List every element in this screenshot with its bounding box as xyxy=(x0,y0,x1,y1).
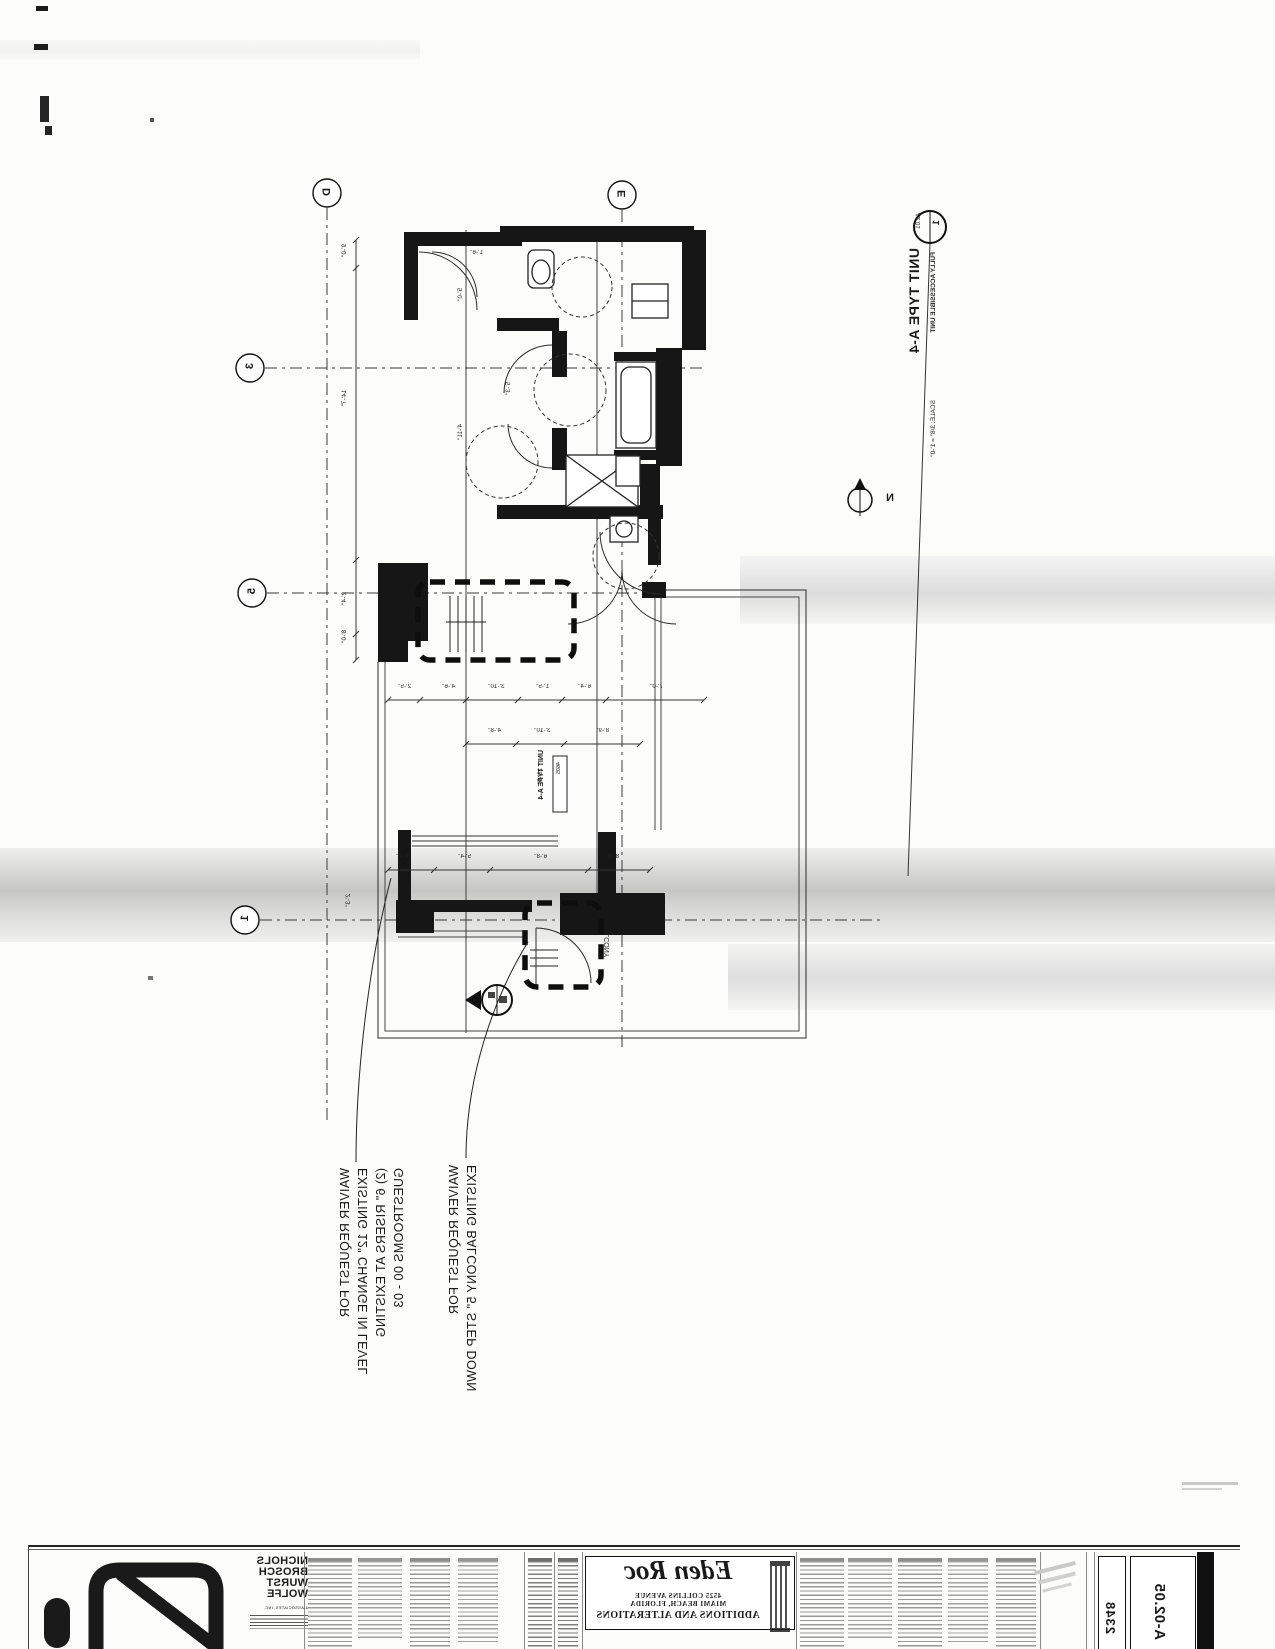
grid-bubble-5: 5 xyxy=(246,588,258,594)
balcony-outline xyxy=(378,590,806,1038)
title-block-text-column xyxy=(996,1558,1036,1647)
dimension-label: 5'-3" xyxy=(506,382,512,395)
title-block-divider xyxy=(1086,1552,1087,1649)
floor-plan-drawing xyxy=(0,0,1275,1649)
north-label: N xyxy=(886,492,894,504)
detail-sheet-ref: A2.01 xyxy=(916,213,922,229)
dimension-label: 18'-5" xyxy=(538,768,544,784)
dimension-label: 14'-7" xyxy=(342,390,348,406)
printed-note xyxy=(1182,1488,1222,1490)
scanned-drawing-sheet: D E 3 5 1 1 A2.01 UNIT TYPE A-4 FULLY AC… xyxy=(0,0,1275,1649)
drawing-subtitle: FULLY ACCESSIBLE UNIT xyxy=(930,252,937,333)
dimension-label: 4'-8" xyxy=(488,728,501,734)
grid-bubble-D: D xyxy=(321,188,333,196)
annotation-line: GUESTROOMS 00 - 03 xyxy=(392,1168,406,1308)
dimension-label: 3'-10" xyxy=(534,728,550,734)
grid-bubble-1: 1 xyxy=(239,915,251,921)
dimension-label: 6'-4" xyxy=(578,684,591,690)
project-address1: 4525 COLLINS AVENUE xyxy=(598,1592,758,1600)
title-block-text-column xyxy=(458,1558,498,1643)
project-address2: MIAMI BEACH, FLORIDA xyxy=(598,1600,758,1608)
title-block-text-column xyxy=(410,1558,450,1649)
title-block-divider xyxy=(554,1552,555,1649)
title-block-divider xyxy=(796,1552,797,1649)
sheet-number: A-02.05 xyxy=(1151,1583,1168,1640)
dimension-label: 2'-5" xyxy=(398,684,411,690)
grid-bubble-3: 3 xyxy=(244,363,256,369)
title-block-text-column xyxy=(800,1558,844,1649)
dimension-label: 8'-9" xyxy=(606,854,619,860)
project-title-box: Eden Roc 4525 COLLINS AVENUE MIAMI BEACH… xyxy=(585,1556,795,1630)
title-block-text-column xyxy=(948,1558,988,1643)
project-type: ADDITIONS AND ALTERATIONS xyxy=(590,1610,766,1621)
title-block-divider xyxy=(304,1552,305,1649)
title-block-text-column xyxy=(898,1558,942,1649)
annotation-line: (2) 6" RISERS AT EXISTING xyxy=(374,1168,388,1338)
title-block-text-column xyxy=(848,1558,892,1641)
room-number: 4605 xyxy=(556,762,562,774)
faint-stamp xyxy=(1032,1560,1084,1600)
section-marker xyxy=(465,985,512,1015)
corner-bar xyxy=(1197,1552,1214,1649)
dimension-label: 4'-6" xyxy=(442,684,455,690)
printed-note xyxy=(1182,1482,1238,1485)
grid-bubble-E: E xyxy=(616,190,628,197)
dimension-label: 6'-8" xyxy=(534,854,547,860)
project-number: 2348 xyxy=(1103,1601,1118,1634)
dimension-label: 1'-6" xyxy=(470,250,483,256)
dimension-label: 4'-11" xyxy=(458,424,464,440)
dimension-label: 1'-7" xyxy=(396,854,409,860)
annotation-line: WAIVER REQUEST FOR xyxy=(447,1165,461,1315)
architect-name: NICHOLS BROSCH WURST WOLFE & ASSOCIATES,… xyxy=(238,1556,308,1629)
firm-line: WOLFE xyxy=(238,1589,308,1600)
title-block-text-column xyxy=(308,1558,352,1649)
dimension-label: 5'-0" xyxy=(458,288,464,301)
dimension-label: 2'-3" xyxy=(346,894,352,907)
dimension-label: 8'-9" xyxy=(596,728,609,734)
drawing-scale: SCALE: 3/8" = 1'-0" xyxy=(930,400,937,457)
annotation-leaders xyxy=(356,878,528,1162)
annotation-line: WAIVER REQUEST FOR xyxy=(338,1168,352,1318)
dimension-label: 7'-0" xyxy=(650,684,663,690)
annotation-line: EXISTING 12" CHANGE IN LEVEL xyxy=(356,1168,370,1375)
dimension-label: 2'-4" xyxy=(342,592,348,605)
dimension-label: 9'-0" xyxy=(342,244,348,257)
balcony-label: BALCONY xyxy=(604,924,611,957)
title-block-divider xyxy=(524,1552,525,1649)
dimension-label: 1'-5" xyxy=(536,684,549,690)
dimension-label: 5'-4" xyxy=(458,854,471,860)
drawing-title: UNIT TYPE A-4 xyxy=(906,248,922,354)
firm-sub: & ASSOCIATES, INC. xyxy=(238,1602,308,1613)
title-block-divider xyxy=(1094,1552,1095,1649)
detail-number: 1 xyxy=(931,220,941,225)
title-block-divider xyxy=(582,1552,583,1649)
north-arrow xyxy=(848,478,872,516)
title-block-text-column xyxy=(358,1558,402,1641)
dimension-label: 3'-10" xyxy=(488,684,504,690)
title-block-text-column xyxy=(558,1558,578,1649)
project-logo: Eden Roc xyxy=(598,1555,758,1586)
column-capital-icon xyxy=(770,1561,790,1632)
dimension-label: 8'-0" xyxy=(342,630,348,643)
title-block-text-column xyxy=(528,1558,552,1649)
grid-bubble-circles xyxy=(231,179,636,934)
annotation-line: EXISTING BALCONY 5" STEP DOWN xyxy=(465,1165,479,1392)
